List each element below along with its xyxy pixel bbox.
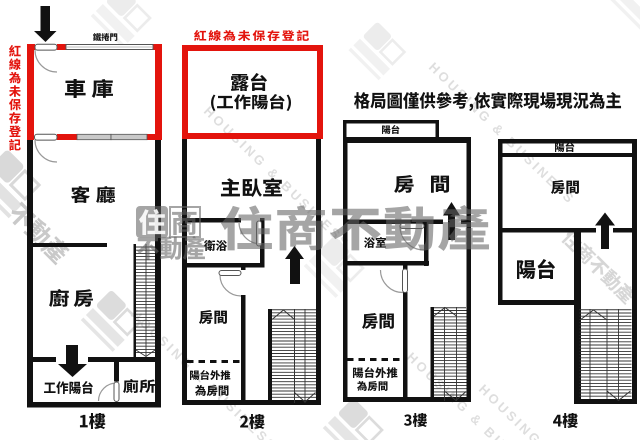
svg-text:HOUSING & BUSINESS: HOUSING & BUSINESS: [201, 103, 354, 251]
